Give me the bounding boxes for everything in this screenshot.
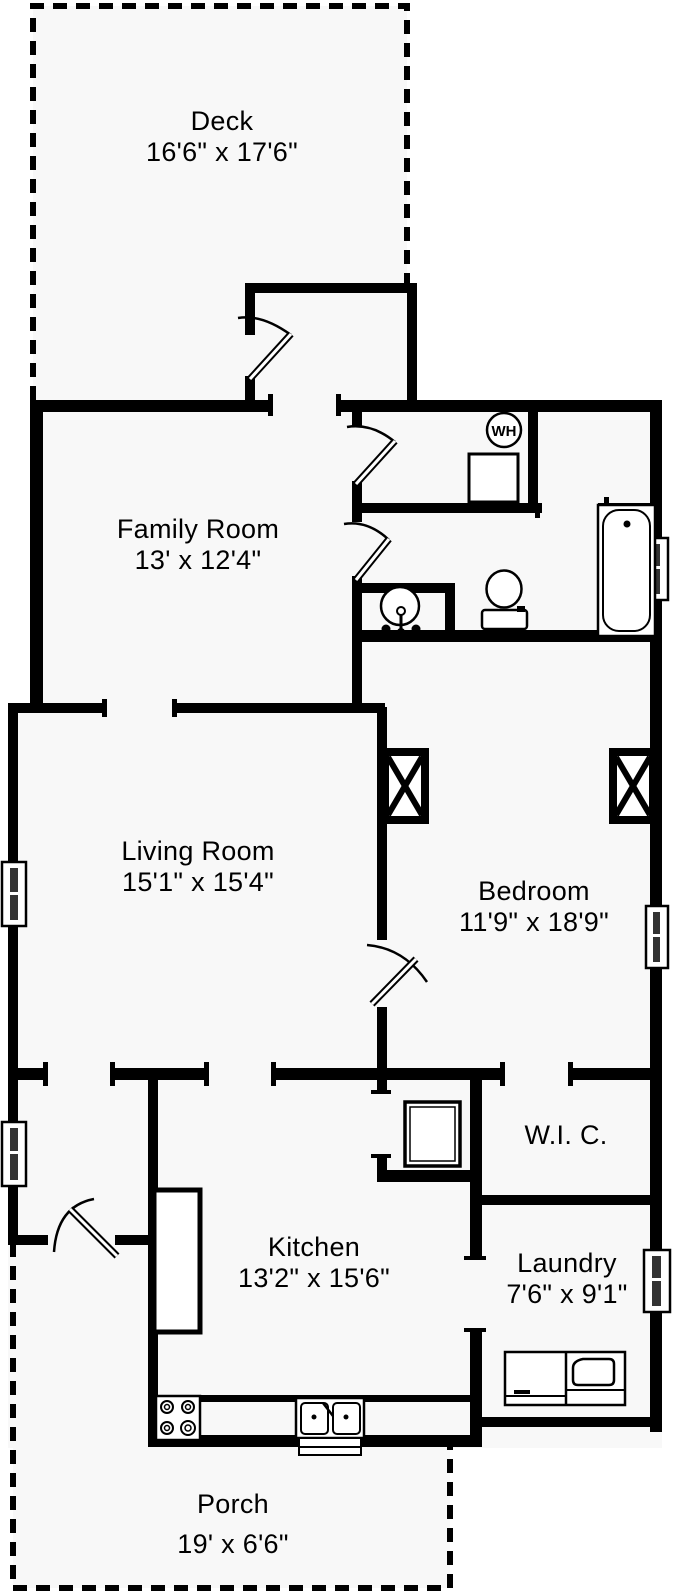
room-label-deck: Deck 16'6" x 17'6" — [146, 106, 298, 168]
window-icon-living-1 — [2, 862, 26, 926]
room-name: Kitchen — [238, 1232, 390, 1263]
room-label-laundry: Laundry 7'6" x 9'1" — [506, 1248, 627, 1310]
room-dims: 19' x 6'6" — [177, 1524, 288, 1564]
room-label-family-room: Family Room 13' x 12'4" — [117, 514, 279, 576]
shower — [405, 1102, 460, 1166]
window-icon-living-2 — [2, 1122, 26, 1186]
room-dims: 11'9" x 18'9" — [459, 907, 609, 938]
room-label-porch: Porch 19' x 6'6" — [177, 1484, 288, 1564]
room-dims: 7'6" x 9'1" — [506, 1279, 627, 1310]
room-label-wic: W.I. C. — [524, 1120, 607, 1151]
room-label-kitchen: Kitchen 13'2" x 15'6" — [238, 1232, 390, 1294]
room-name: Bedroom — [459, 876, 609, 907]
room-dims: 16'6" x 17'6" — [146, 137, 298, 168]
washer-dryer — [505, 1352, 625, 1405]
kitchen-sink — [296, 1398, 364, 1455]
water-heater-label: WH — [492, 423, 517, 440]
floor-plan: WH — [0, 0, 693, 1596]
window-icon-bedroom — [646, 906, 668, 968]
chimney-icon-left — [385, 752, 425, 820]
room-dims: 15'1" x 15'4" — [121, 867, 274, 898]
room-label-bedroom: Bedroom 11'9" x 18'9" — [459, 876, 609, 938]
window-icon-laundry — [644, 1250, 670, 1312]
bathtub — [598, 505, 655, 636]
room-label-living-room: Living Room 15'1" x 15'4" — [121, 836, 274, 898]
floor-areas — [8, 6, 662, 1588]
pedestal-sink — [381, 587, 421, 636]
room-name: Living Room — [121, 836, 274, 867]
room-name: Deck — [146, 106, 298, 137]
room-dims: 13' x 12'4" — [117, 545, 279, 576]
room-name: Porch — [177, 1484, 288, 1524]
room-dims: 13'2" x 15'6" — [238, 1263, 390, 1294]
room-name: Family Room — [117, 514, 279, 545]
floor-plan-drawing: WH — [0, 0, 693, 1596]
room-name: W.I. C. — [524, 1120, 607, 1151]
pantry-cabinet — [154, 1190, 200, 1332]
chimney-icon-right — [613, 752, 653, 820]
stove — [156, 1396, 200, 1440]
room-name: Laundry — [506, 1248, 627, 1279]
